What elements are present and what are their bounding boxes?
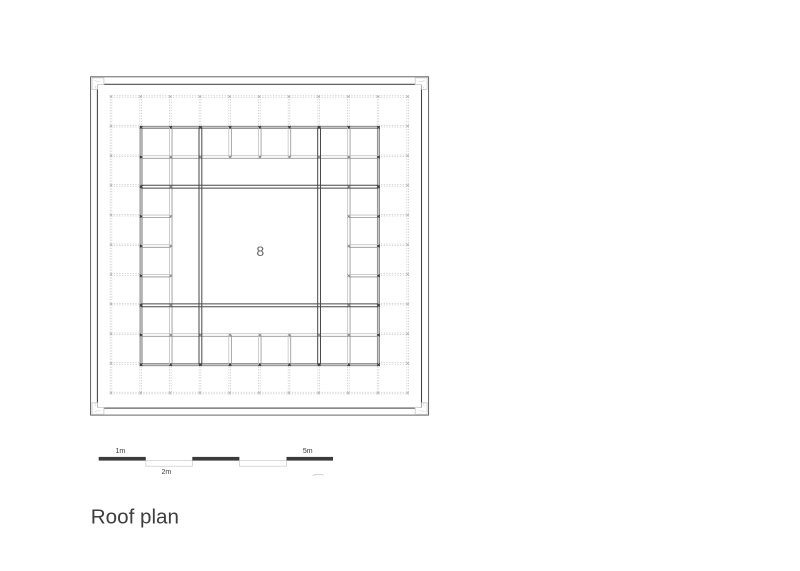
- svg-text:5m: 5m: [303, 448, 313, 455]
- svg-text:2m: 2m: [162, 469, 172, 476]
- svg-text:8: 8: [256, 243, 264, 259]
- svg-text:1m: 1m: [116, 448, 126, 455]
- svg-text:Roof plan: Roof plan: [91, 506, 179, 529]
